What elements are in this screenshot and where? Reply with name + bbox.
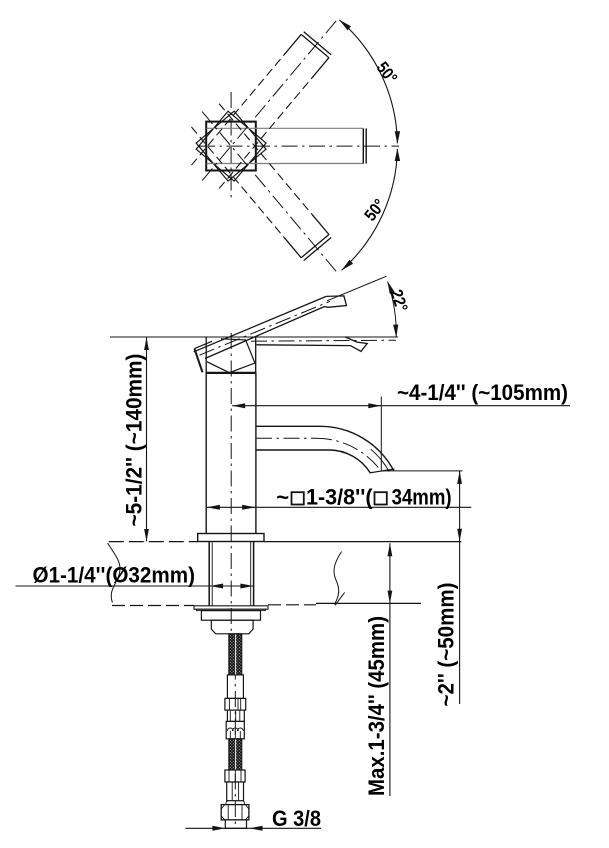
- svg-text:~5-1/2'' (~140mm): ~5-1/2'' (~140mm): [121, 354, 146, 527]
- svg-text:~2'' (~50mm): ~2'' (~50mm): [433, 583, 458, 707]
- svg-text:G 3/8: G 3/8: [272, 806, 321, 831]
- svg-text:Ø1-1/4''(Ø32mm): Ø1-1/4''(Ø32mm): [33, 562, 196, 587]
- svg-text:1-3/8''(: 1-3/8''(: [306, 484, 373, 509]
- svg-text:34mm): 34mm): [392, 484, 452, 509]
- svg-text:~: ~: [276, 484, 289, 509]
- svg-text:Max.1-3/4'' (45mm): Max.1-3/4'' (45mm): [364, 616, 389, 796]
- svg-text:~4-1/4'' (~105mm): ~4-1/4'' (~105mm): [397, 380, 568, 405]
